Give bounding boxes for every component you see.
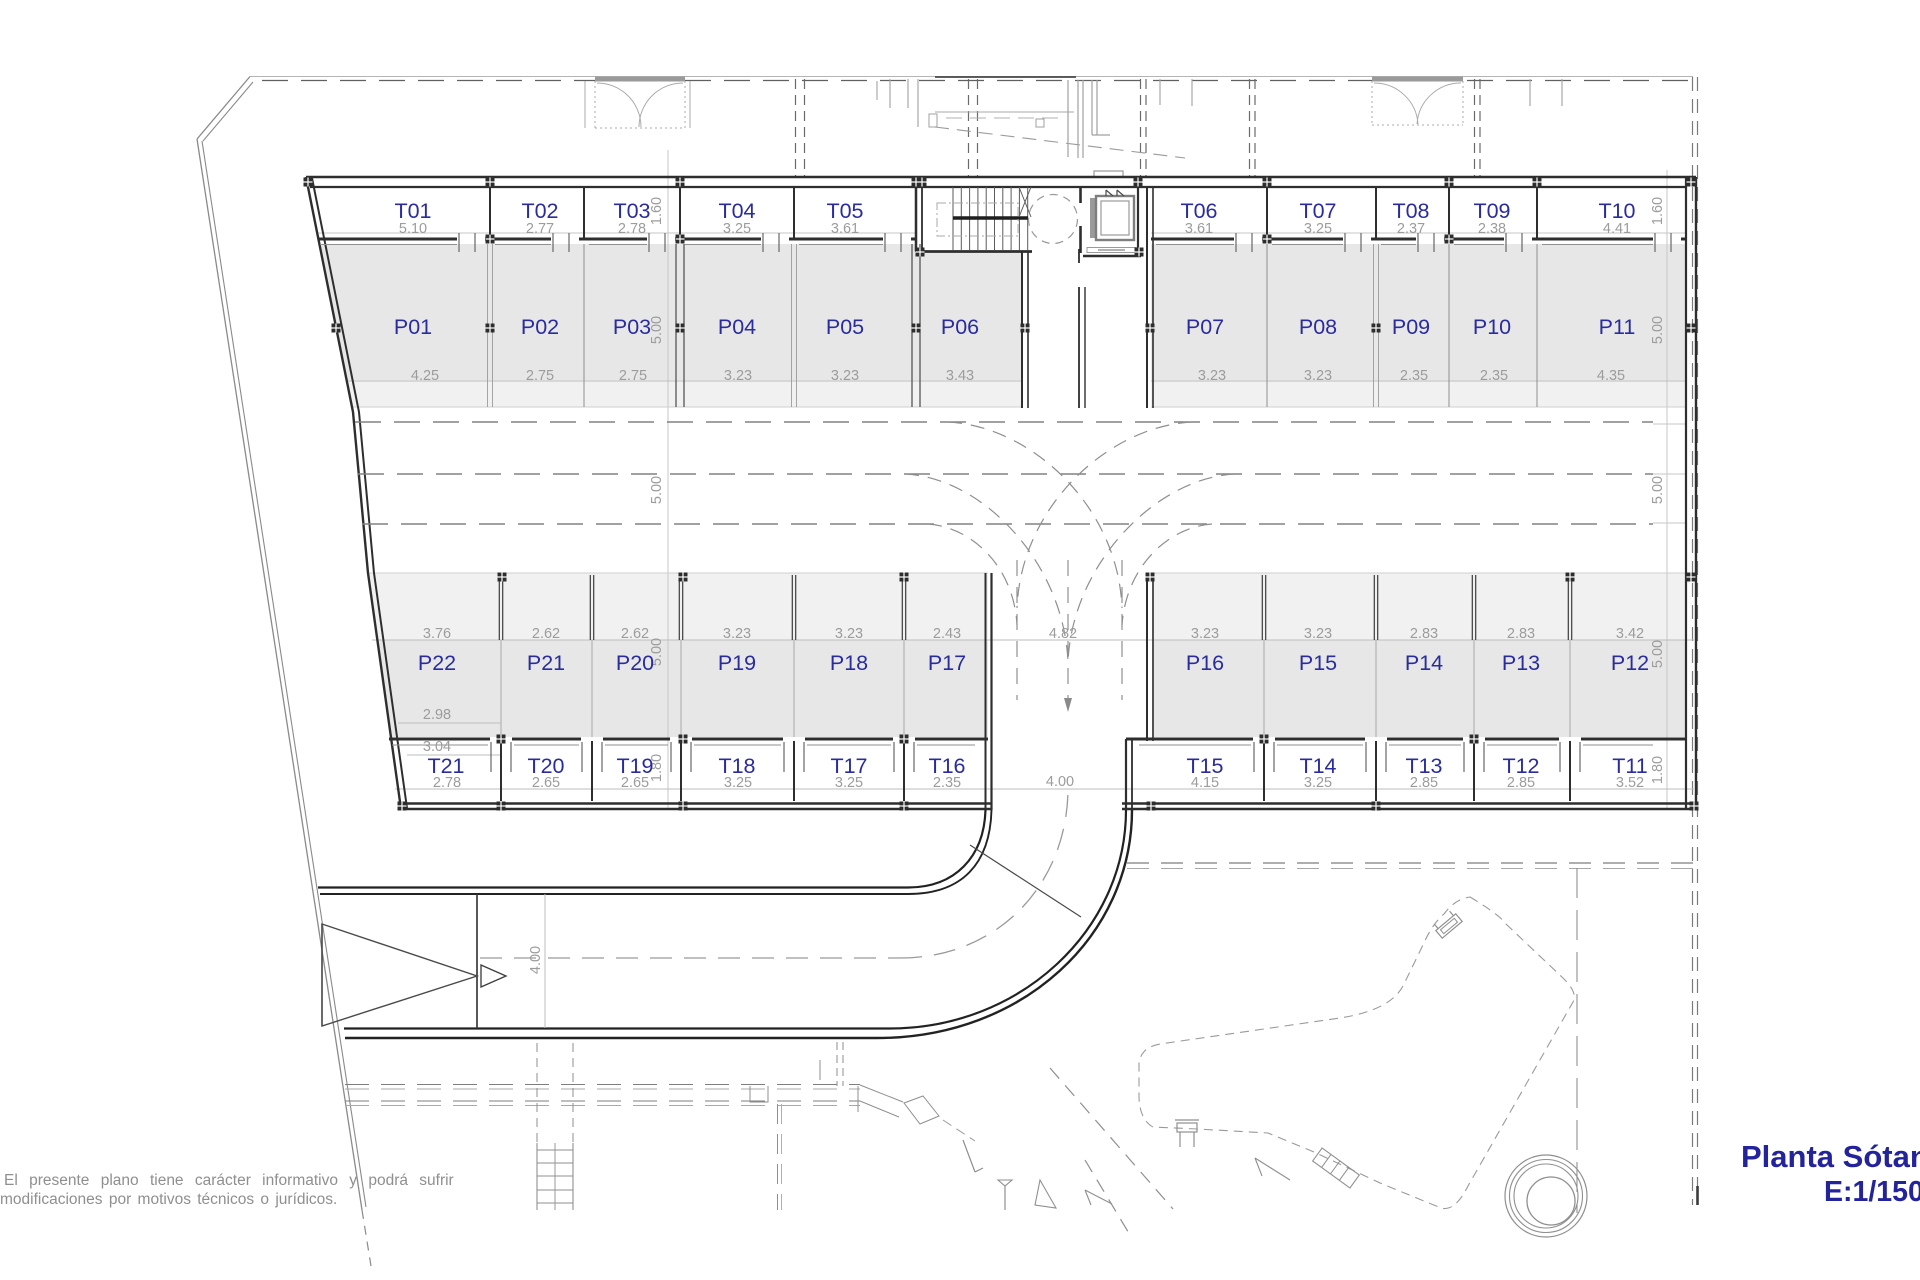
svg-text:P02: P02 <box>521 315 559 339</box>
svg-text:3.23: 3.23 <box>1304 626 1332 642</box>
svg-text:2.78: 2.78 <box>618 221 646 237</box>
svg-text:2.65: 2.65 <box>621 775 649 791</box>
svg-text:2.98: 2.98 <box>423 707 451 723</box>
svg-text:3.25: 3.25 <box>724 775 752 791</box>
svg-text:2.43: 2.43 <box>933 626 961 642</box>
svg-text:P06: P06 <box>941 315 979 339</box>
svg-text:3.25: 3.25 <box>835 775 863 791</box>
svg-text:T05: T05 <box>826 199 863 223</box>
svg-text:1.60: 1.60 <box>649 197 665 225</box>
svg-text:4.35: 4.35 <box>1597 368 1625 384</box>
svg-text:P09: P09 <box>1392 315 1430 339</box>
svg-text:2.37: 2.37 <box>1397 221 1425 237</box>
svg-text:3.25: 3.25 <box>723 221 751 237</box>
svg-text:3.76: 3.76 <box>423 626 451 642</box>
svg-text:4.15: 4.15 <box>1191 775 1219 791</box>
svg-text:P08: P08 <box>1299 315 1337 339</box>
svg-text:T06: T06 <box>1180 199 1217 223</box>
svg-text:2.77: 2.77 <box>526 221 554 237</box>
svg-text:P13: P13 <box>1502 651 1540 675</box>
svg-text:3.23: 3.23 <box>835 626 863 642</box>
svg-text:1.60: 1.60 <box>1650 197 1666 225</box>
svg-text:Planta Sótano: Planta Sótano <box>1741 1139 1920 1174</box>
svg-text:T04: T04 <box>718 199 755 223</box>
svg-text:modificaciones por motivos téc: modificaciones por motivos técnicos o ju… <box>0 1191 337 1208</box>
svg-text:P12: P12 <box>1611 651 1649 675</box>
svg-text:T09: T09 <box>1473 199 1510 223</box>
svg-text:3.23: 3.23 <box>1198 368 1226 384</box>
svg-text:2.83: 2.83 <box>1410 626 1438 642</box>
svg-text:3.23: 3.23 <box>724 368 752 384</box>
svg-text:T01: T01 <box>394 199 431 223</box>
svg-text:P18: P18 <box>830 651 868 675</box>
svg-text:4.25: 4.25 <box>411 368 439 384</box>
svg-text:1.80: 1.80 <box>1650 756 1666 784</box>
svg-text:P22: P22 <box>418 651 456 675</box>
svg-text:2.62: 2.62 <box>532 626 560 642</box>
svg-text:3.52: 3.52 <box>1616 775 1644 791</box>
svg-text:P04: P04 <box>718 315 756 339</box>
svg-text:P17: P17 <box>928 651 966 675</box>
svg-text:2.78: 2.78 <box>433 775 461 791</box>
svg-text:P14: P14 <box>1405 651 1443 675</box>
svg-text:3.61: 3.61 <box>1185 221 1213 237</box>
svg-text:T07: T07 <box>1299 199 1336 223</box>
svg-text:3.61: 3.61 <box>831 221 859 237</box>
svg-text:2.62: 2.62 <box>621 626 649 642</box>
svg-text:P21: P21 <box>527 651 565 675</box>
svg-text:5.00: 5.00 <box>1650 316 1666 344</box>
svg-text:3.04: 3.04 <box>423 739 451 755</box>
svg-text:P11: P11 <box>1599 315 1636 339</box>
svg-text:P03: P03 <box>613 315 651 339</box>
svg-text:T10: T10 <box>1598 199 1635 223</box>
svg-text:5.00: 5.00 <box>649 476 665 504</box>
svg-text:2.83: 2.83 <box>1507 626 1535 642</box>
svg-text:P01: P01 <box>394 315 432 339</box>
svg-text:P05: P05 <box>826 315 864 339</box>
svg-text:P20: P20 <box>616 651 654 675</box>
svg-text:3.23: 3.23 <box>831 368 859 384</box>
svg-text:4.82: 4.82 <box>1049 626 1077 642</box>
svg-text:5.00: 5.00 <box>1650 640 1666 668</box>
svg-text:P19: P19 <box>718 651 756 675</box>
svg-text:P07: P07 <box>1186 315 1224 339</box>
svg-text:2.35: 2.35 <box>933 775 961 791</box>
svg-text:4.41: 4.41 <box>1603 221 1631 237</box>
svg-text:El presente plano tiene caráct: El presente plano tiene carácter informa… <box>4 1172 454 1189</box>
svg-text:T08: T08 <box>1392 199 1429 223</box>
svg-text:P16: P16 <box>1186 651 1224 675</box>
svg-text:2.85: 2.85 <box>1507 775 1535 791</box>
svg-text:2.35: 2.35 <box>1400 368 1428 384</box>
svg-text:5.00: 5.00 <box>1650 476 1666 504</box>
svg-text:T03: T03 <box>613 199 650 223</box>
svg-text:2.75: 2.75 <box>526 368 554 384</box>
svg-text:2.35: 2.35 <box>1480 368 1508 384</box>
svg-text:E:1/150: E:1/150 <box>1824 1176 1920 1208</box>
svg-text:5.00: 5.00 <box>649 316 665 344</box>
svg-text:3.23: 3.23 <box>1191 626 1219 642</box>
svg-text:2.75: 2.75 <box>619 368 647 384</box>
svg-text:3.25: 3.25 <box>1304 221 1332 237</box>
svg-text:2.38: 2.38 <box>1478 221 1506 237</box>
svg-text:3.25: 3.25 <box>1304 775 1332 791</box>
svg-text:4.00: 4.00 <box>1046 774 1074 790</box>
svg-text:2.65: 2.65 <box>532 775 560 791</box>
svg-text:2.85: 2.85 <box>1410 775 1438 791</box>
svg-text:5.10: 5.10 <box>399 221 427 237</box>
svg-text:3.42: 3.42 <box>1616 626 1644 642</box>
svg-text:4.00: 4.00 <box>528 946 544 974</box>
svg-text:P15: P15 <box>1299 651 1337 675</box>
svg-text:T02: T02 <box>521 199 558 223</box>
svg-text:P10: P10 <box>1473 315 1511 339</box>
svg-text:3.43: 3.43 <box>946 368 974 384</box>
svg-text:3.23: 3.23 <box>1304 368 1332 384</box>
svg-text:3.23: 3.23 <box>723 626 751 642</box>
